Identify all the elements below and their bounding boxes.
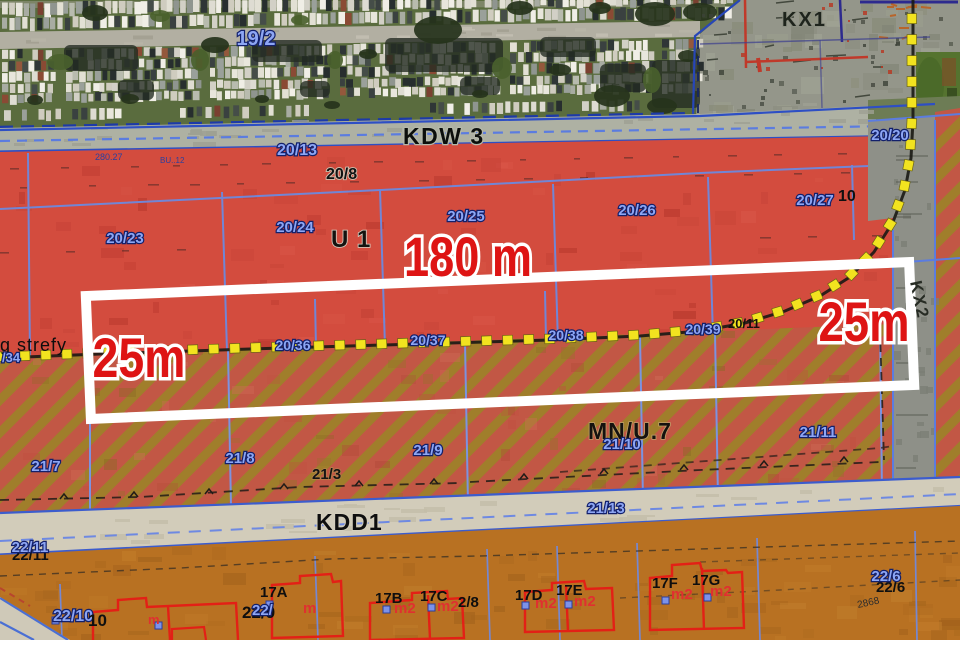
svg-text:21/9: 21/9 xyxy=(413,442,442,459)
svg-text:m2: m2 xyxy=(671,586,693,603)
svg-text:20/13: 20/13 xyxy=(277,142,317,159)
svg-text:20/36: 20/36 xyxy=(275,337,310,353)
svg-text:25m: 25m xyxy=(819,290,910,353)
svg-text:2/8: 2/8 xyxy=(458,594,479,611)
svg-text:20/24: 20/24 xyxy=(276,219,314,236)
svg-text:22/: 22/ xyxy=(252,602,274,619)
svg-text:KDD1: KDD1 xyxy=(316,509,383,535)
svg-text:21/8: 21/8 xyxy=(225,450,254,467)
svg-text:280.27: 280.27 xyxy=(95,152,123,162)
svg-text:m2: m2 xyxy=(535,595,557,612)
svg-text:m2: m2 xyxy=(710,583,732,600)
svg-text:20/25: 20/25 xyxy=(447,208,485,225)
svg-text:21/11: 21/11 xyxy=(800,424,837,441)
svg-text:20/11: 20/11 xyxy=(728,316,760,331)
svg-text:10: 10 xyxy=(838,188,856,205)
svg-text:20/37: 20/37 xyxy=(410,332,445,348)
svg-text:m2: m2 xyxy=(394,600,416,617)
svg-text:KDW 3: KDW 3 xyxy=(403,123,485,149)
svg-text:20/38: 20/38 xyxy=(548,327,583,343)
svg-text:22/6: 22/6 xyxy=(871,568,900,585)
svg-text:KX1: KX1 xyxy=(782,9,827,31)
svg-text:U 1: U 1 xyxy=(331,226,371,253)
svg-text:20/23: 20/23 xyxy=(106,230,144,247)
svg-text:20/39: 20/39 xyxy=(685,321,720,337)
svg-text:/34: /34 xyxy=(2,350,21,365)
svg-text:20/27: 20/27 xyxy=(796,192,834,209)
svg-text:m2: m2 xyxy=(437,598,459,615)
svg-text:25m: 25m xyxy=(93,326,186,389)
svg-text:10: 10 xyxy=(88,611,107,630)
svg-text:20/26: 20/26 xyxy=(618,202,656,219)
svg-text:m: m xyxy=(303,600,316,617)
svg-text:19/2: 19/2 xyxy=(237,28,276,50)
svg-text:m2: m2 xyxy=(574,593,596,610)
svg-text:180 m: 180 m xyxy=(404,225,532,288)
svg-text:20/8: 20/8 xyxy=(326,166,357,183)
svg-text:17A: 17A xyxy=(260,584,288,601)
svg-text:m: m xyxy=(148,612,160,627)
svg-text:21/3: 21/3 xyxy=(312,466,341,483)
svg-text:BU..12: BU..12 xyxy=(160,156,185,165)
svg-text:21/7: 21/7 xyxy=(31,458,60,475)
svg-text:21/10: 21/10 xyxy=(603,436,641,453)
svg-text:22/11: 22/11 xyxy=(12,539,49,556)
svg-text:21/13: 21/13 xyxy=(587,500,625,517)
svg-text:20/20: 20/20 xyxy=(871,127,909,144)
